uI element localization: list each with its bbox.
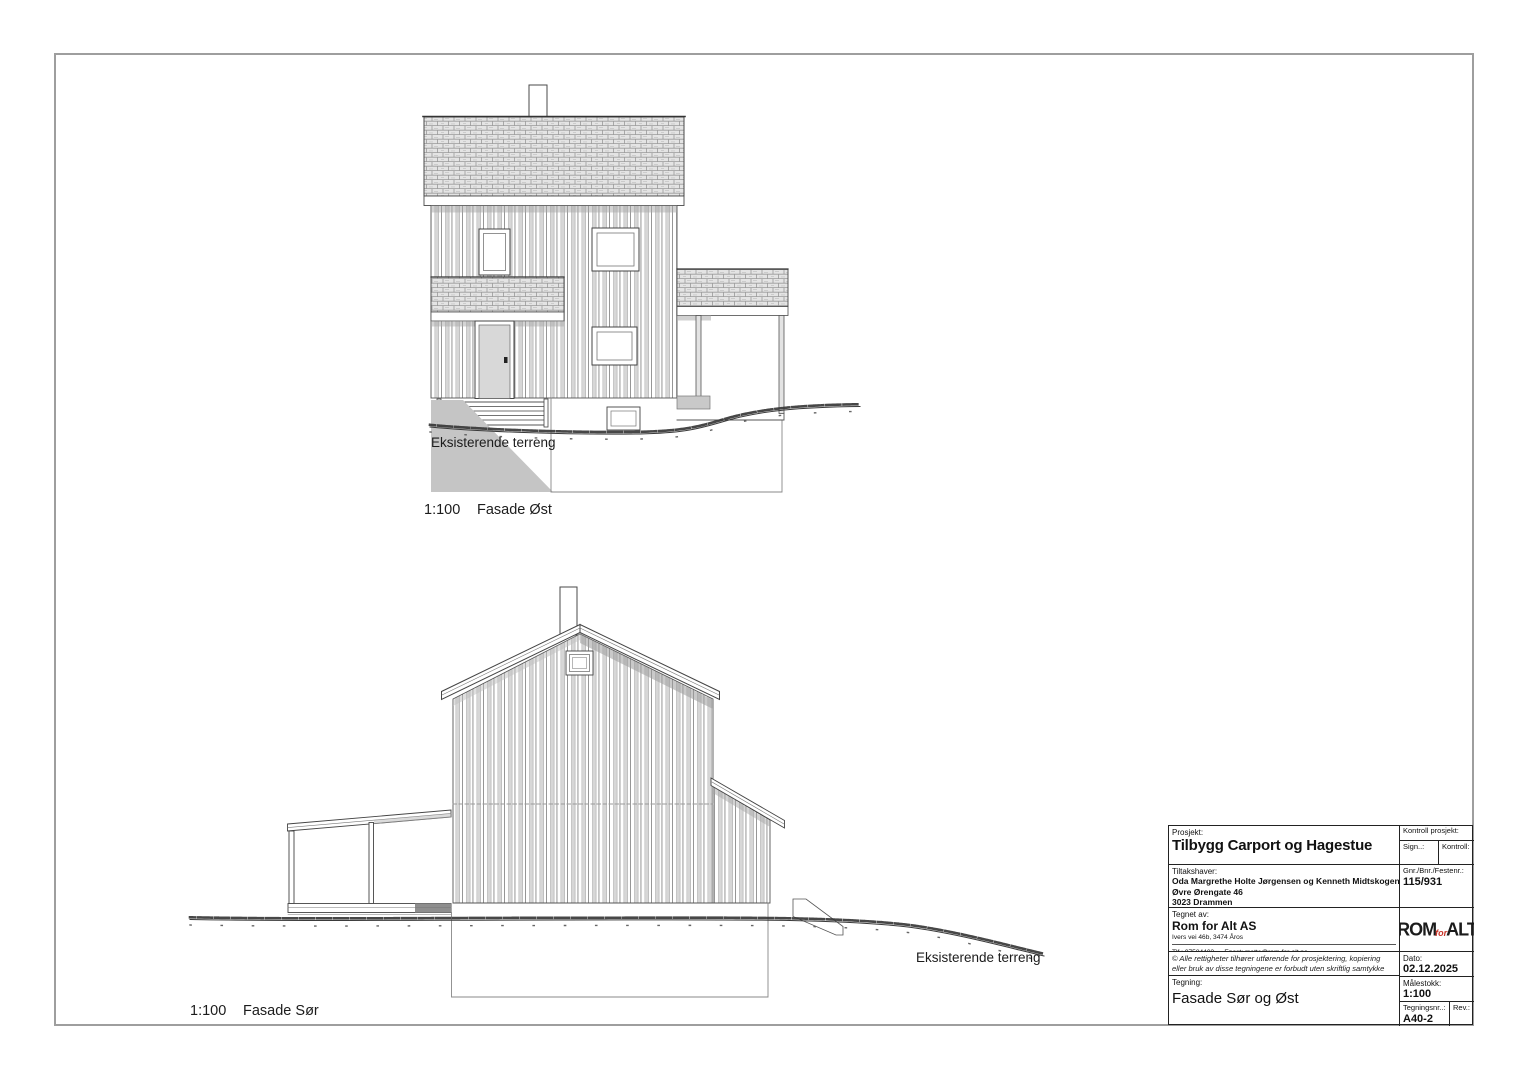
east-side-porch (677, 269, 788, 420)
client-label: Tiltakshaver: (1172, 867, 1396, 876)
carport-post (289, 831, 294, 904)
east-main-roof (424, 117, 684, 196)
drawnby-address: Ivers vei 46b, 3474 Åros (1172, 934, 1396, 943)
titleblock-drawnby-cell: Tegnet av: Rom for Alt AS Ivers vei 46b,… (1169, 907, 1399, 951)
date-label: Dato: (1403, 954, 1471, 963)
project-label: Prosjekt: (1172, 828, 1396, 837)
east-foundation-outline (551, 398, 782, 492)
east-caption-name: Fasade Øst (477, 502, 552, 518)
east-entry-door (475, 321, 514, 399)
grass-texture (190, 917, 1044, 954)
drawingno-label: Tegningsnr..: (1403, 1004, 1446, 1013)
titleblock-scale-cell: Målestokk: 1:100 (1399, 976, 1474, 1001)
east-basement-window (607, 407, 640, 430)
east-window-upper-left (479, 229, 510, 275)
drawnby-label: Tegnet av: (1172, 910, 1396, 919)
copyright-text: © Alle rettigheter tilhører utførende fo… (1172, 954, 1384, 973)
east-roof-fascia (424, 196, 684, 206)
rev-label: Rev.: (1453, 1004, 1471, 1013)
logo-text-rom: ROM (1399, 918, 1436, 940)
titleblock-client-cell: Tiltakshaver: Oda Margrethe Holte Jørgen… (1169, 864, 1399, 907)
east-entry-porch-roof (431, 277, 564, 327)
scale-label: Målestokk: (1403, 979, 1471, 988)
drawingno-value: A40-2 (1403, 1013, 1446, 1026)
titleblock-drawing-cell: Tegning: Fasade Sør og Øst (1169, 975, 1399, 1026)
east-caption-scale: 1:100 (424, 502, 460, 518)
titleblock-rev-cell: Rev.: (1449, 1001, 1474, 1026)
south-caption-name: Fasade Sør (243, 1003, 319, 1019)
scale-value: 1:100 (1403, 988, 1471, 1001)
gnr-value: 115/931 (1403, 876, 1471, 889)
sign-label: Sign..: (1403, 843, 1435, 852)
porch-stoop (677, 396, 710, 409)
south-carport (288, 810, 452, 915)
titleblock-logo-cell: ROM for ALT (1399, 907, 1474, 951)
titleblock-gnr-cell: Gnr./Bnr./Festenr.: 115/931 (1399, 864, 1474, 907)
rom-for-alt-logo: ROM for ALT (1400, 908, 1474, 951)
east-window-upper-right (592, 228, 639, 271)
east-eave-shadow (431, 206, 677, 213)
drawing-sheet: Eksisterende terreng 1:100 Fasade Øst (0, 0, 1528, 1080)
south-ramp (793, 899, 843, 935)
client-city: 3023 Drammen (1172, 897, 1396, 907)
south-caption-scale: 1:100 (190, 1003, 226, 1019)
drawnby-company: Rom for Alt AS (1172, 919, 1396, 933)
titleblock-sign-cell: Sign..: (1399, 840, 1438, 864)
titleblock-drawingno-cell: Tegningsnr..: A40-2 (1399, 1001, 1449, 1026)
title-block: Prosjekt: Tilbygg Carport og Hagestue Ti… (1168, 825, 1473, 1025)
porch-post (779, 316, 784, 414)
date-value: 02.12.2025 (1403, 963, 1471, 976)
carport-deck-shaded (415, 904, 451, 913)
carport-post (369, 823, 374, 904)
titleblock-project-cell: Prosjekt: Tilbygg Carport og Hagestue (1169, 826, 1399, 864)
gnr-label: Gnr./Bnr./Festenr.: (1403, 867, 1471, 876)
porch-post (696, 316, 701, 405)
titleblock-date-cell: Dato: 02.12.2025 (1399, 951, 1474, 976)
door-handle (504, 357, 508, 363)
south-gable-vent (566, 651, 593, 675)
east-facade-drawing: Eksisterende terreng 1:100 Fasade Øst (423, 85, 860, 518)
client-street: Øvre Ørengate 46 (1172, 887, 1396, 898)
east-window-lower-right (592, 327, 637, 365)
east-terrain-label: Eksisterende terreng (431, 435, 556, 450)
titleblock-control-header: Kontroll prosjekt: (1399, 826, 1474, 840)
control-label: Kontroll prosjekt: (1403, 827, 1471, 836)
south-terrain-label: Eksisterende terreng (916, 950, 1041, 965)
logo-text-alt: ALT (1446, 918, 1474, 940)
kontroll-label: Kontroll: (1442, 843, 1471, 852)
south-facade-drawing: Eksisterende terreng 1:100 Fasade Sør (190, 587, 1044, 1019)
project-title: Tilbygg Carport og Hagestue (1172, 838, 1396, 855)
drawnby-contact-row: Tlf.: 97584403 Epost: mette@rom-for-alt.… (1172, 944, 1396, 951)
drawing-label: Tegning: (1172, 978, 1396, 987)
titleblock-kontroll-cell: Kontroll: (1438, 840, 1474, 864)
east-chimney (529, 85, 547, 118)
drawing-title: Fasade Sør og Øst (1172, 990, 1396, 1007)
client-name: Oda Margrethe Holte Jørgensen og Kenneth… (1172, 876, 1396, 887)
titleblock-copyright-cell: © Alle rettigheter tilhører utførende fo… (1169, 951, 1399, 975)
